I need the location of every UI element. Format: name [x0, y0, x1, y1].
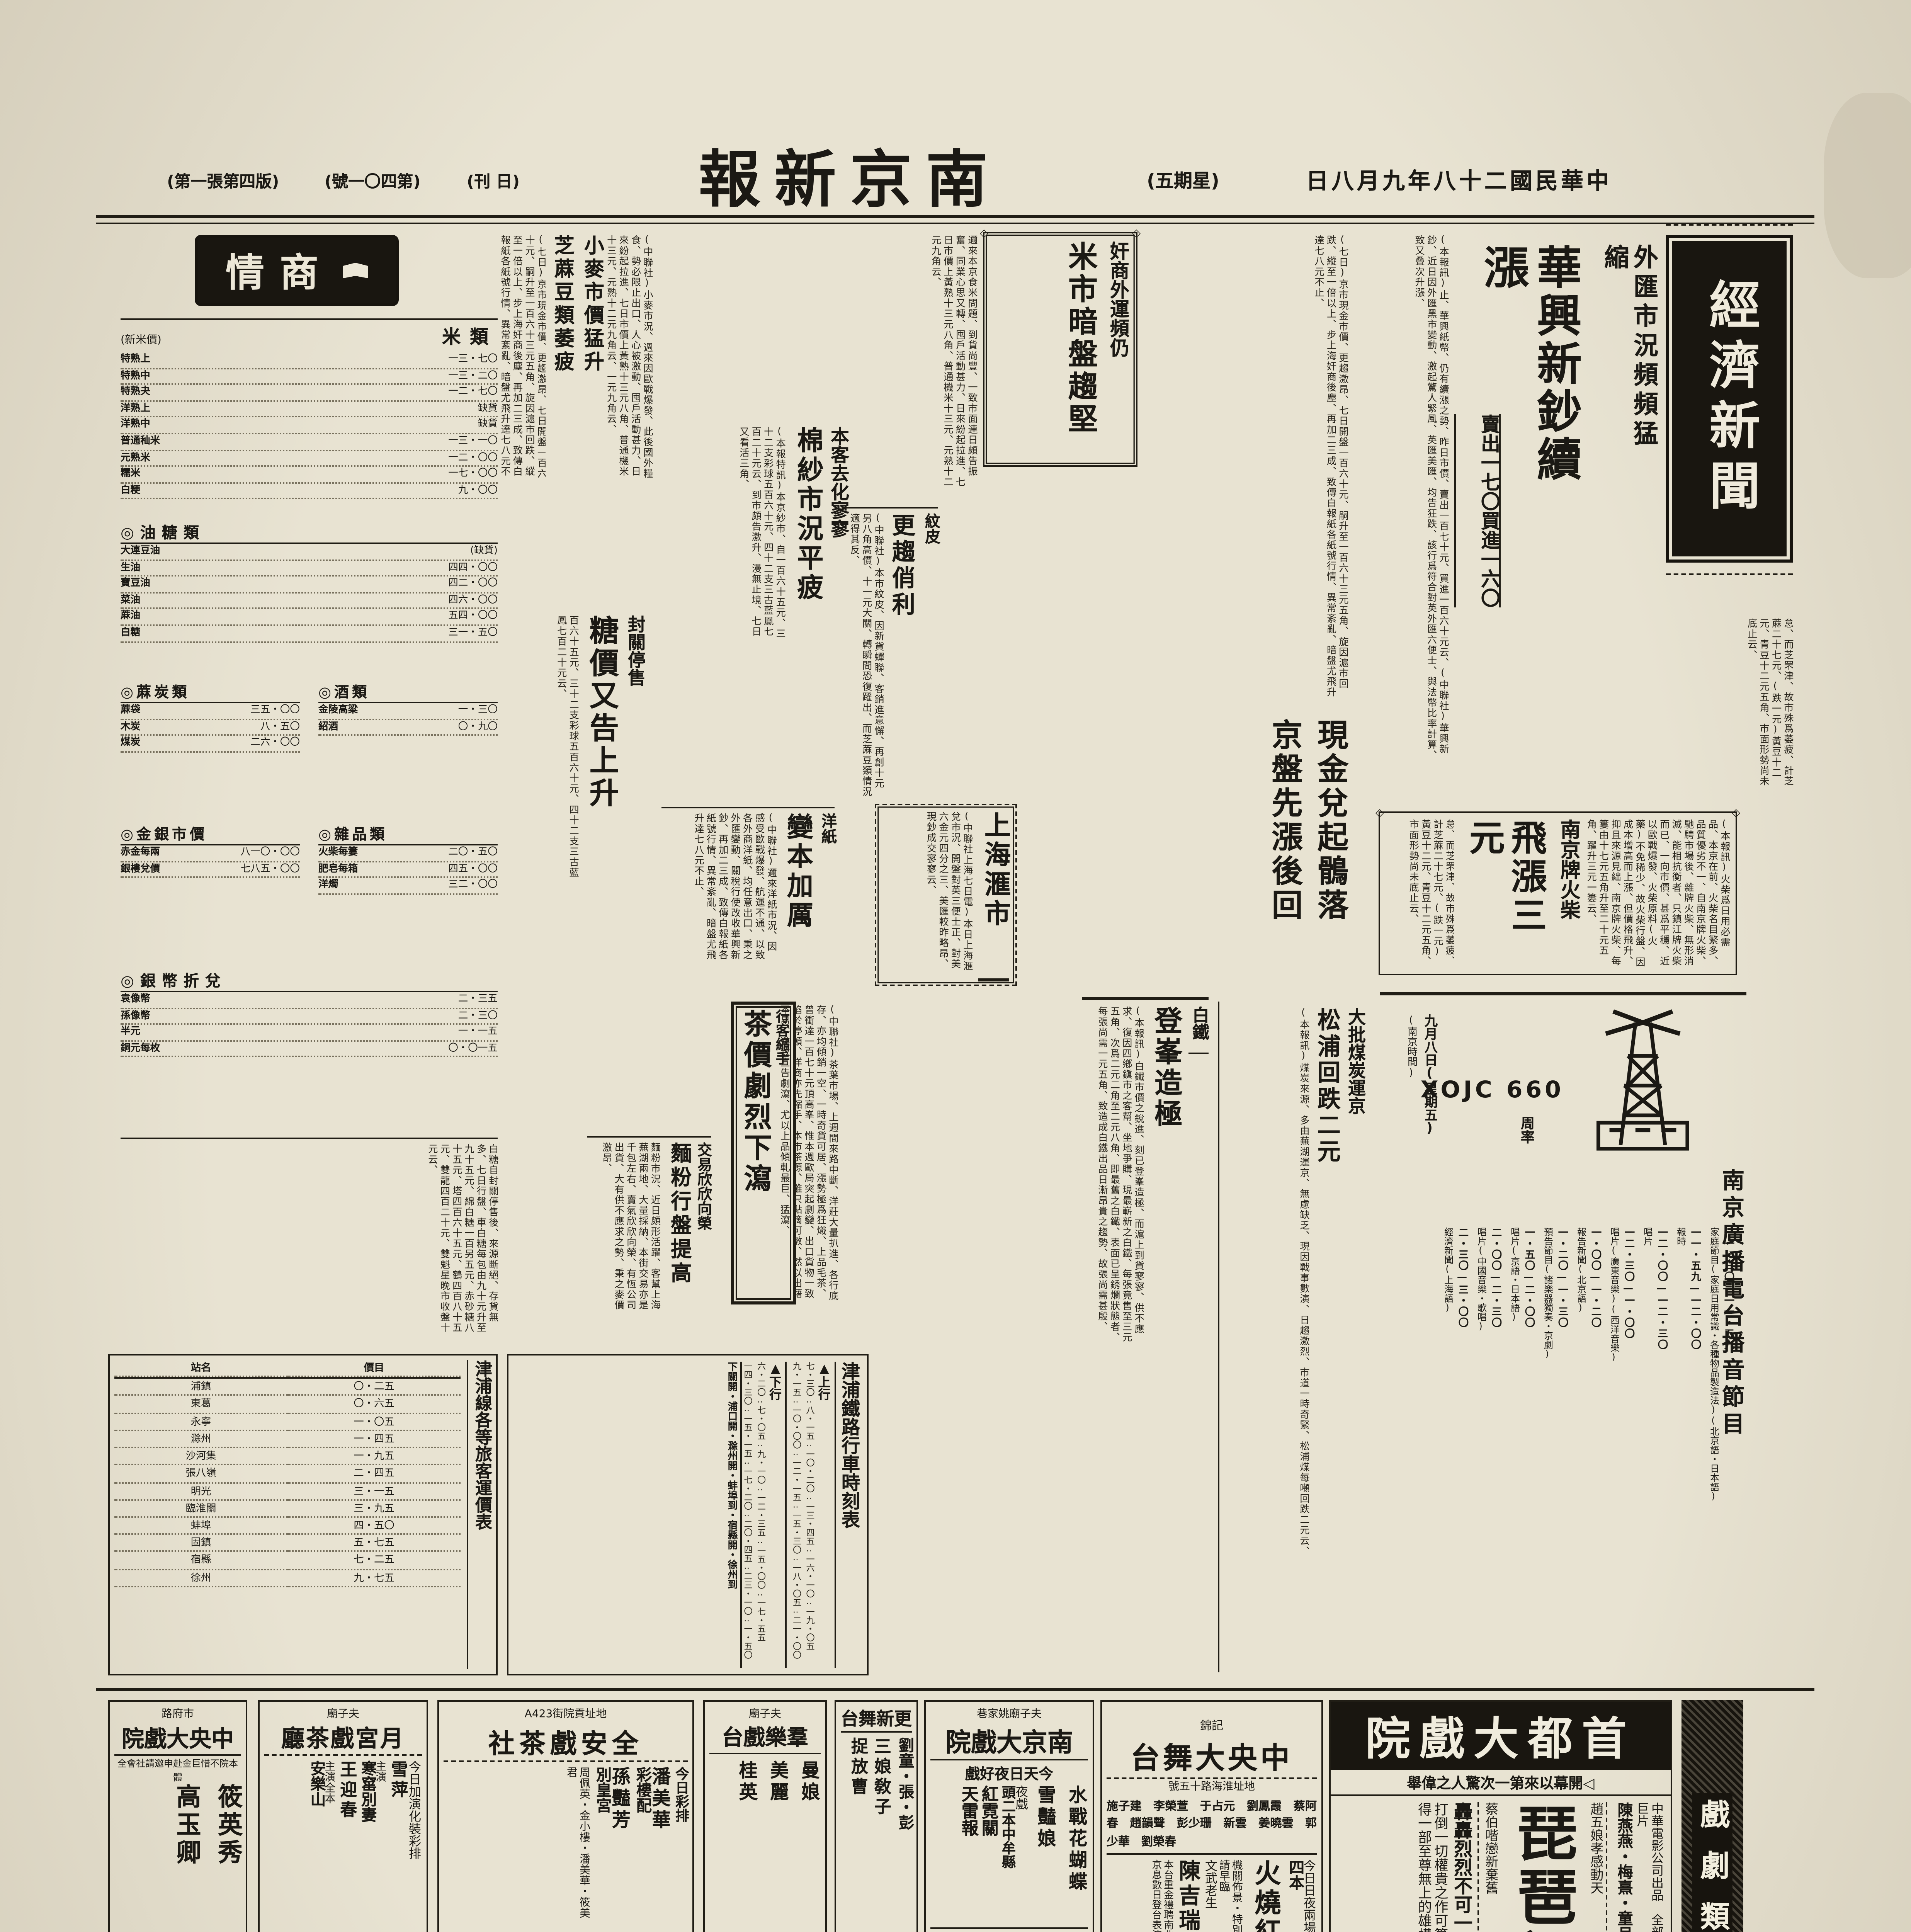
rice-body: 邇來本京食米問題、到貨尚豐、一致市面連日頗告振奮、同業心思又轉、囤戶活動甚力、日… [865, 235, 977, 495]
quanan-address: 地址貢院街324A [444, 1706, 688, 1722]
table-cell: 生油 [121, 560, 140, 575]
table-row: 特熟上一三・七〇 [121, 352, 498, 369]
table-cell: 煤炭 [121, 736, 140, 751]
wheat-headline-1: 小麥市價猛升 [579, 235, 603, 405]
zhongyang-stage-kicker: 錦記 [1200, 1719, 1223, 1733]
table-cell: 〇・六五 [287, 1396, 461, 1414]
table-cell: 一・三〇 [458, 703, 498, 718]
table-row: 宿縣七・二五 [114, 1553, 461, 1570]
table-row: 一・五〇—二・〇〇唱片(京語・日本語) [1507, 1227, 1536, 1669]
sugar-body-continued: 白糖自封關停售後、來源斷絕、存貨無多、七日行盤、車白糖每包由九十元升至九十五元、… [121, 1138, 498, 1342]
railway-timetable: 津浦鐵路行車時刻表 ▲上行 七・三〇‥八・一五‥一〇・二〇‥一三・四五‥一六・一… [507, 1354, 869, 1675]
table-cell: 元熟米 [121, 451, 150, 466]
table-cell: 滁州 [114, 1431, 287, 1449]
table-row: 蔴油五四・〇〇 [121, 610, 498, 626]
table-cell: 蚌埠 [114, 1518, 287, 1535]
paper-market-kicker: 洋紙 [816, 813, 835, 875]
nanjing-day-play-2: 雪豔娘 [1035, 1785, 1057, 1927]
table-cell: 一二・〇〇—一二・三〇 [1654, 1227, 1669, 1669]
table-cell: 三・九五 [287, 1500, 461, 1518]
qunle-star-3: 桂英 [736, 1760, 758, 1932]
shoudu-banner: 首都大戲院 [1331, 1702, 1671, 1770]
table-cell: 火柴每簍 [318, 845, 358, 860]
table-cell: 宿縣 [114, 1553, 287, 1570]
shoudu-studio-lines: 中華電影公司出品 全部有聲對白歌唱 古裝名劇巨片 [1636, 1802, 1665, 1932]
nanjing-night-play-3: 天雷報 [958, 1785, 978, 1927]
table-cell: 二・四五 [287, 1466, 461, 1483]
zhongyang-stage-ad: 錦記 中央大舞台 地址淮海路十五號 施子建 李榮萱 于占元 劉鳳霞 蔡阿春 趙韻… [1100, 1700, 1323, 1932]
sugar-kicker: 封關停售 [625, 615, 646, 739]
table-cell: 二・三〇—三・〇〇 [1454, 1227, 1470, 1669]
quanan-teahouse-ad: 地址貢院街324A 全安戲茶社 今日彩排 潘美華 彩樓配 孫豔芳 別皇宮 周佩英… [437, 1700, 694, 1932]
table-cell: 九・七五 [287, 1570, 461, 1587]
table-cell: 唱片 [1640, 1227, 1654, 1669]
table-cell: 三五・〇〇 [250, 703, 300, 718]
table-cell: 七・二五 [287, 1553, 461, 1570]
zhongyang-theater-star2: 高玉卿 [170, 1784, 200, 1932]
weekday-label: (星期五) [1147, 167, 1219, 193]
edition-label: (第一張第四版) [167, 170, 279, 193]
timetable-up-train-2: 九・一五‥一〇・〇〇‥一二・一五‥一五・三〇‥一八・〇五‥二一・〇〇 [790, 1362, 800, 1668]
market-section-oil-rows: 大連豆油(缺貨)生油四四・〇〇寶豆油四二・〇〇菜油四六・〇〇蔴油五四・〇〇白糖三… [121, 544, 498, 643]
table-row: 滁州一・四五 [114, 1431, 461, 1449]
shoudu-tag-left: 蔡伯喈戀新棄舊 [1478, 1802, 1498, 1932]
flour-body: 麵粉市況、近日頗形活躍、客幫上海蕪湖兩地、大量採納、本街交易亦是千包左右、賣氣欣… [607, 1142, 660, 1314]
table-row: 二・〇〇—二・三〇唱片(中國音樂・歌唱) [1474, 1227, 1503, 1669]
lead-body-2: 怠、而芝罘津、故市殊爲萎疲、計芝蔴二十七元、(跌一元)黃豆十二元、青豆十二元五角… [1507, 618, 1793, 791]
market-section-hemp-title: ◎蔴炭類 [121, 680, 300, 703]
quanan-today: 今日彩排 [672, 1767, 688, 1859]
table-row: 臨淮關三・九五 [114, 1500, 461, 1518]
market-section-coins: ◎銀幣折兌 袁像幣二・三五孫像幣二・三〇半元一・一五銅元每枚〇・〇一五 [121, 968, 498, 1125]
paper-stain-4 [1824, 93, 1911, 278]
table-cell: 金陵高粱 [318, 703, 358, 718]
table-row: 火柴每簍二〇・五〇 [318, 845, 498, 862]
table-cell: 特熟中 [121, 369, 150, 383]
date-line: 中華民國二十八年九月八日 [1306, 164, 1612, 196]
table-row: 赤金每兩八一〇・〇〇 [121, 845, 300, 862]
table-cell: 銅元每枚 [121, 1041, 160, 1056]
shoudu-praise-1: 轟轟烈烈不可一世 [1452, 1802, 1474, 1932]
market-section-hemp: ◎蔴炭類 蔴袋三五・〇〇木炭八・五〇煤炭二六・〇〇 [121, 680, 300, 816]
logo-ornament-bottom [1666, 572, 1793, 575]
table-cell: 一・五〇—二・〇〇 [1521, 1227, 1536, 1669]
radio-freq-label: 周率 [1517, 1116, 1533, 1162]
paper-market-article: 洋紙 變本加厲 (中聯社)邇來洋紙市況、因感受歐戰爆發、航運不通、以致各外商洋紙… [661, 807, 835, 961]
nanjing-theater-today: 今天日夜好戲 [930, 1760, 1088, 1785]
shangqing-logo-text: 商情 [226, 243, 334, 298]
table-cell: 一三・二〇 [448, 369, 498, 383]
nanjing-theater-ad: 夫子廟姚家巷 南京大戲院 今天日夜好戲 水戰花蝴蝶 雪豔娘 夜戲 頭二本中牟縣 … [924, 1700, 1094, 1932]
table-row: 銀樓兌價七八五・〇〇 [121, 862, 300, 878]
yuegong-today: 今日加演化裝彩排 [407, 1760, 422, 1932]
table-cell: 洋燭 [318, 878, 338, 893]
gengxin-play-1: 三娘敎子 [870, 1737, 891, 1932]
shoudu-slogan: ◁開幕以來第一次驚人之偉舉 [1331, 1770, 1671, 1796]
market-section-oil-title: ◎油糖類 [121, 519, 498, 544]
table-cell: 浦鎮 [114, 1379, 287, 1396]
qunle-name: 羣樂戲台 [709, 1722, 821, 1754]
table-row: 白粳九・〇〇 [121, 484, 498, 500]
table-row: 紹酒〇・九〇 [318, 719, 498, 736]
table-cell: 紹酒 [318, 719, 338, 734]
matches-body-right: (本報訊)火柴爲日用必需品、本京在前、火柴名目繁多、品質優劣不一、自南京牌火柴、… [1584, 819, 1729, 968]
coal-headline: 松浦回跌二元 [1313, 1008, 1341, 1666]
table-row: 張八嶺二・四五 [114, 1466, 461, 1483]
table-row: 白糖三一・五〇 [121, 626, 498, 642]
table-cell: 孫像幣 [121, 1009, 150, 1023]
table-cell: 一三・一〇 [448, 434, 498, 449]
table-cell: 〇・二五 [287, 1379, 461, 1396]
masthead-rule-top [96, 215, 1814, 219]
wheat-body-left: (七日)京市現金市價、更趨激昂、七日開盤一百六十元、嗣升至一百六十三元五角、旋因… [500, 235, 546, 482]
table-cell: 一二・三〇—一・〇〇 [1620, 1227, 1636, 1669]
table-cell: 二六・〇〇 [250, 736, 300, 751]
market-section-gold: ◎金銀市價 赤金每兩八一〇・〇〇銀樓兌價七八五・〇〇 [121, 822, 300, 958]
table-cell: 蔴油 [121, 610, 140, 624]
shoudu-praise-3: 得一部至尊無上的雄構 [1414, 1802, 1430, 1932]
table-cell: 家庭節目(家庭日用常識・各種物品製造法)(北京語・日本語) [1706, 1227, 1720, 1669]
weave-kicker: 紋皮 [920, 513, 938, 606]
radio-date: 九月八日(星期五) [1422, 1014, 1437, 1215]
matches-headline: 飛漲三元 [1460, 819, 1544, 968]
table-cell: 木炭 [121, 719, 140, 734]
cash-headline-2: 京盤先漲後回 [1265, 719, 1302, 985]
theater-category-label: 戲劇類 [1681, 1700, 1743, 1932]
table-cell: 沙河集 [114, 1448, 287, 1466]
table-cell: 白粳 [121, 484, 140, 498]
table-cell: 一・〇〇—一・二〇 [1587, 1227, 1603, 1669]
table-cell: 一・四五 [287, 1431, 461, 1449]
fare-table-rows: 浦鎮〇・二五東葛〇・六五永寧一・〇五滁州一・四五沙河集一・九五張八嶺二・四五明光… [114, 1379, 461, 1587]
table-cell: 大連豆油 [121, 544, 160, 559]
table-cell: 銀樓兌價 [121, 862, 160, 876]
economic-news-logo-text: 經濟新聞 [1699, 278, 1760, 519]
market-section-gold-rows: 赤金每兩八一〇・〇〇銀樓兌價七八五・〇〇 [121, 845, 300, 878]
table-row: 蔴袋三五・〇〇 [121, 703, 300, 719]
fare-table: 津浦線各等旅客運價表 站名 價目 浦鎮〇・二五東葛〇・六五永寧一・〇五滁州一・四… [108, 1354, 498, 1675]
market-section-wine-rows: 金陵高粱一・三〇紹酒〇・九〇 [318, 703, 498, 736]
masthead: (第一張第四版) (第四〇一號) (日 刊) 南京新報 (星期五) 中華民國二十… [108, 142, 1808, 213]
table-cell: 蔴袋 [121, 703, 140, 718]
table-cell: 臨淮關 [114, 1500, 287, 1518]
table-row: 永寧一・〇五 [114, 1414, 461, 1431]
table-cell: 四五・〇〇 [448, 862, 498, 876]
zhongyang-guest-title: 文武老生 [1204, 1859, 1218, 1932]
table-row: 洋燭三二・〇〇 [318, 878, 498, 895]
qunle-location: 夫子廟 [709, 1706, 821, 1722]
zy-note1: 今日日夜兩場開演 [1303, 1859, 1317, 1932]
table-cell: 永寧 [114, 1414, 287, 1431]
lead-body: (本報訊)止、華興紙幣、仍有續漲之勢、昨日市價、賣出一百七十元、買進一百六十元云… [1355, 235, 1448, 768]
quanan-bill2-star: 孫豔芳 [609, 1767, 631, 1927]
table-row: 木炭八・五〇 [121, 719, 300, 736]
shoudu-name: 首都大戲院 [1365, 1703, 1636, 1768]
shoudu-cast-names: 陳燕燕・梅熹・童月娟 [1614, 1802, 1631, 1932]
table-row: 徐州九・七五 [114, 1570, 461, 1587]
table-cell: 三・一五 [287, 1483, 461, 1500]
daily-label: (日 刊) [467, 170, 520, 193]
table-cell: 三一・五〇 [448, 626, 498, 641]
table-cell: 四・五〇 [287, 1518, 461, 1535]
gengxin-name: 更新舞台 [841, 1706, 912, 1733]
yuegong-bill2-note: 主演全本 [323, 1760, 336, 1869]
table-cell: 明光 [114, 1483, 287, 1500]
table-cell: 袁像幣 [121, 992, 150, 1007]
rice-kicker: 奸商外運頻仍 [1105, 241, 1128, 457]
shoudu-studio: 中華電影公司出品 [1651, 1802, 1664, 1901]
yuegong-location: 夫子廟 [264, 1706, 422, 1722]
coal-kicker: 大批煤炭運京 [1345, 1008, 1366, 1666]
table-row: 銅元每枚〇・〇一五 [121, 1041, 498, 1058]
yuegong-bill2-play: 安樂山 [305, 1760, 323, 1932]
quanan-name: 全安戲茶社 [444, 1722, 688, 1762]
table-cell: 缺貨 [478, 418, 498, 433]
table-row: 一一・三〇—一一・五九家庭節目(家庭日用常識・各種物品製造法)(北京語・日本語) [1706, 1227, 1736, 1669]
table-cell: 寶豆油 [121, 577, 150, 592]
table-cell: (缺貨) [470, 544, 498, 559]
timetable-title: 津浦鐵路行車時刻表 [834, 1362, 861, 1668]
table-cell: 洋熟中 [121, 418, 150, 433]
timetable-down-train-1: 六・二〇‥七・〇五‥九・一〇‥一二・三五‥一五・〇〇‥一七・五五 [755, 1362, 765, 1668]
table-row: 東葛〇・六五 [114, 1396, 461, 1414]
table-cell: 特熟夬 [121, 385, 150, 400]
flour-headline: 麵粉行盤提高 [665, 1142, 689, 1314]
tin-body: (本報訊)白鐵市價之銳進、刻已登峯造極、而滬上到貨寥寥、供不應求、復因四鄕鎭市之… [1082, 1006, 1143, 1349]
paper-market-headline: 變本加厲 [781, 813, 812, 961]
fare-col-price: 價目 [287, 1360, 461, 1378]
lead-kicker: 外匯市況頻頻猛縮 [1592, 244, 1657, 453]
table-cell: 洋熟上 [121, 401, 150, 416]
table-row: 一・二〇—一・三〇預告節目(諸樂器獨奏・京劇) [1540, 1227, 1569, 1669]
quanan-bill1-star: 潘美華 [649, 1767, 672, 1927]
table-row: 大連豆油(缺貨) [121, 544, 498, 560]
table-cell: 缺貨 [478, 401, 498, 416]
masthead-rule-bottom [96, 222, 1814, 223]
table-cell: 一・一五 [458, 1025, 498, 1040]
radio-callsign: XOJC 660 [1420, 1076, 1564, 1104]
tea-body: (中聯社)茶葉市場、上週間來路中斷、洋莊大量扒進、各行底存、亦均傾銷一空、一時奇… [804, 1005, 838, 1301]
table-row: 二・三〇—三・〇〇經濟新聞(上海語) [1440, 1227, 1470, 1669]
table-row: 特熟夬一二・七〇 [121, 385, 498, 401]
zhongyang-theater-star1: 筱英秀 [212, 1784, 241, 1932]
tea-headline: 茶價劇烈下瀉 [739, 1009, 772, 1297]
zhongyang-guest-note: 本台重金禮聘南北馳名初次來京 現已到京息數日登台表演擇吉 [1148, 1859, 1172, 1932]
yuegong-teahouse-ad: 夫子廟 月宮戲茶廳 今日加演化裝彩排 雪萍 主演 寒窰別妻 王迎春 主演全本 安… [258, 1700, 428, 1932]
table-cell: 〇・九〇 [458, 719, 498, 734]
zhongyang-stage-note: 今日日夜兩場開演 初次公演 [1302, 1859, 1317, 1932]
yuegong-bill1-note: 主演 [374, 1760, 387, 1822]
cotton-article: 本客去化寥寥 棉紗市況平疲 (本報特訊)本京紗市、自一百六十五元、三十二支彩球五… [661, 427, 850, 646]
table-cell: 一・〇五 [287, 1414, 461, 1431]
zhongyang-guest-name: 陳吉瑞 [1175, 1859, 1200, 1932]
radio-section: 南京廣播電台播音節目 XOJC 660 周率 九月八日(星期五) (南京時間) … [1380, 992, 1746, 1679]
table-cell: 半元 [121, 1025, 140, 1040]
paper-market-body: (中聯社)邇來洋紙市況、因感受歐戰爆發、航運不通、以致各外商洋紙、均任意出口、秉… [680, 813, 776, 961]
table-cell: 八・五〇 [260, 719, 300, 734]
table-cell: 三二・〇〇 [448, 878, 498, 893]
table-cell: 預告節目(諸樂器獨奏・京劇) [1540, 1227, 1554, 1669]
logo-ornament-top [1666, 223, 1793, 226]
paper-title: 南京新報 [699, 130, 1001, 219]
rice-price-rows: 特熟上一三・七〇特熟中一三・二〇特熟夬一二・七〇洋熟上缺貨洋熟中缺貨普通秈米一三… [121, 352, 498, 500]
table-row: 普通秈米一三・一〇 [121, 434, 498, 451]
nanjing-night-label: 夜戲 [1014, 1785, 1029, 1832]
yuegong-name: 月宮戲茶廳 [264, 1722, 422, 1756]
table-cell: 固鎮 [114, 1535, 287, 1553]
matches-body-left: 怠、而芝罘津、故市殊爲萎疲、計芝蔴二十七元、(跌一元)黃豆十二元、青豆十二元五角… [1386, 819, 1454, 968]
table-cell: 經濟新聞(上海語) [1440, 1227, 1454, 1669]
rice-article-box: 奸商外運頻仍 米市暗盤趨堅 [983, 232, 1137, 467]
table-row: 特熟中一三・二〇 [121, 369, 498, 385]
sugar-article: 封關停售 糖價又告上升 百六十五元、三十二支彩球五百六十元、四十二支三古藍鳳七百… [538, 615, 646, 881]
flour-kicker: 交易欣欣向榮 [694, 1142, 711, 1250]
theater-category-text: 戲劇類 [1692, 1792, 1733, 1932]
table-cell: 五・七五 [287, 1535, 461, 1553]
tin-headline: 登峯造極 [1149, 1006, 1182, 1349]
table-cell: 二・三〇 [458, 1009, 498, 1023]
table-row: 糯米一七・〇〇 [121, 467, 498, 483]
newspaper-page: (第一張第四版) (第四〇一號) (日 刊) 南京新報 (星期五) 中華民國二十… [0, 0, 1911, 1932]
table-row: 袁像幣二・三五 [121, 992, 498, 1009]
shoudu-play-title: 琵琶記 [1507, 1802, 1578, 1932]
nanjing-theater-name: 南京大戲院 [930, 1722, 1088, 1760]
nanjing-night-play-1: 頭二本中牟縣 [998, 1785, 1014, 1927]
table-cell: 四四・〇〇 [448, 560, 498, 575]
zhongyang-stage-address: 地址淮海路十五號 [1107, 1779, 1317, 1794]
shanghai-market-box: 上海滙市 (中聯社上海七日電)本日上海滙兌市況、開盤對英三便士正、對美六金元四分… [875, 804, 1017, 986]
zhongyang-stage-name: 中央大舞台 [1107, 1736, 1317, 1779]
table-cell: 七八五・〇〇 [241, 862, 300, 876]
radio-tower-icon [1583, 1008, 1703, 1156]
market-section-misc-title: ◎雜品類 [318, 822, 498, 845]
zhongyang-theater-intro: 本院不惜巨金赴申邀請社會全體 [114, 1756, 241, 1784]
table-row: 生油四四・〇〇 [121, 560, 498, 577]
weave-headline: 更趨俏利 [888, 513, 915, 798]
shoudu-praise-2: 打倒一切權貴之作可算 [1430, 1802, 1447, 1932]
zhongyang-theater-location: 市府路 [114, 1706, 241, 1722]
timetable-up-label: ▲上行 [817, 1362, 831, 1668]
table-cell: 八一〇・〇〇 [241, 845, 300, 860]
table-row: 寶豆油四二・〇〇 [121, 577, 498, 593]
table-cell: 白糖 [121, 626, 140, 641]
market-section-coins-rows: 袁像幣二・三五孫像幣二・三〇半元一・一五銅元每枚〇・〇一五 [121, 992, 498, 1058]
timetable-up-train-1: 七・三〇‥八・一五‥一〇・二〇‥一三・四五‥一六・一〇‥一九・〇五 [803, 1362, 813, 1668]
coal-article: 大批煤炭運京 松浦回跌二元 (本報訊)煤炭來源、多由蕪湖運京、無慮缺乏、現因戰事… [1218, 1002, 1372, 1672]
table-cell: 四二・〇〇 [448, 577, 498, 592]
gengxin-cast: 劉童・張・彭 [894, 1737, 912, 1932]
table-cell: 二・三五 [458, 992, 498, 1007]
table-cell: 唱片(中國音樂・歌唱) [1474, 1227, 1488, 1669]
sugar-headline: 糖價又告上升 [584, 615, 619, 881]
rice-price-note: (新米價) [121, 332, 162, 348]
table-cell: 一・九五 [287, 1448, 461, 1466]
tin-article: 白鐵 登峯造極 (本報訊)白鐵市價之銳進、刻已登峯造極、而滬上到貨寥寥、供不應求… [1082, 997, 1209, 1349]
table-row: 肥皂每箱四五・〇〇 [318, 862, 498, 878]
quanan-bill1-play: 彩樓配 [631, 1767, 649, 1927]
table-cell: 二〇・五〇 [448, 845, 498, 860]
shoudu-cast: 陳燕燕・梅熹・童月娟 主演 [1612, 1802, 1630, 1932]
table-cell: 四六・〇〇 [448, 593, 498, 608]
table-row: 一一・五九—一二・〇〇報時 [1673, 1227, 1702, 1669]
shoudu-tag-right: 趙五娘孝感動天 [1588, 1802, 1608, 1932]
shoudu-line1: 全部有聲對白歌唱 [1651, 1913, 1664, 1932]
book-icon [343, 263, 368, 278]
tin-kicker: 白鐵 [1188, 1006, 1209, 1054]
lead-subhead: 賣出一七〇買進一六〇 [1454, 414, 1501, 607]
quanan-support: 周佩英・金小樓・潘美華・筱美君 [566, 1767, 591, 1927]
table-cell: 一三・七〇 [448, 352, 498, 367]
radio-frequency: 660 [1506, 1076, 1564, 1104]
nanjing-theater-location: 夫子廟姚家巷 [930, 1706, 1088, 1722]
yuegong-bill1-play: 寒窰別妻 [356, 1760, 374, 1932]
market-section-wine-title: ◎酒類 [318, 680, 498, 703]
table-cell: 〇・〇一五 [448, 1041, 498, 1056]
timetable-down-label: ▲下行 [768, 1362, 787, 1668]
sugar-body: 百六十五元、三十二支彩球五百六十元、四十二支三古藍鳳七百二十元云、 [553, 615, 578, 881]
table-row: 菜油四六・〇〇 [121, 593, 498, 609]
weave-article: 紋皮 更趨俏利 (中聯社)本市紋皮、因新貨蟬聯、客銷進意懈、再創十元另八角高價、… [842, 507, 938, 798]
zy-guest-note1: 本台重金禮聘南北馳名初次來京 [1161, 1859, 1173, 1932]
table-cell: 張八嶺 [114, 1466, 287, 1483]
table-cell: 特熟上 [121, 352, 150, 367]
nanjing-day-play-1: 水戰花蝴蝶 [1066, 1785, 1088, 1927]
table-row: 一・〇〇—一・二〇報告新聞(北京語) [1573, 1227, 1603, 1669]
shanghai-market-body: (中聯社上海七日電)本日上海滙兌市況、開盤對英三便士正、對美六金元四分之三、美匯… [892, 811, 972, 978]
yuegong-bill2-star: 王迎春 [336, 1760, 356, 1932]
table-cell: 報告新聞(北京語) [1573, 1227, 1587, 1669]
quanan-bill2-play: 別皇宮 [591, 1767, 609, 1927]
market-section-oil: ◎油糖類 大連豆油(缺貨)生油四四・〇〇寶豆油四二・〇〇菜油四六・〇〇蔴油五四・… [121, 519, 498, 671]
coal-body: (本報訊)煤炭來源、多由蕪湖運京、無慮缺乏、現因戰事數演、日趨激烈、市道一時奇緊… [1238, 1008, 1309, 1666]
table-row: 一二・〇〇—一二・三〇唱片 [1640, 1227, 1669, 1669]
market-section-wine: ◎酒類 金陵高粱一・三〇紹酒〇・九〇 [318, 680, 498, 816]
table-cell: 一二・〇〇 [448, 451, 498, 466]
qunle-stage-ad: 夫子廟 羣樂戲台 曼娘 美麗 桂英 [703, 1700, 827, 1932]
market-section-coins-title: ◎銀幣折兌 [121, 968, 498, 992]
table-row: 孫像幣二・三〇 [121, 1009, 498, 1025]
table-row: 沙河集一・九五 [114, 1448, 461, 1466]
issue-number: (第四〇一號) [325, 170, 420, 193]
table-row: 金陵高粱一・三〇 [318, 703, 498, 719]
zhongyang-stage-play-pre: 四本 [1284, 1859, 1302, 1932]
market-section-misc: ◎雜品類 火柴每簍二〇・五〇肥皂每箱四五・〇〇洋燭三二・〇〇 [318, 822, 498, 958]
timetable-down-train-2: 一四・三〇‥一五・一五‥一七・二〇‥二〇・四五‥二三・一〇‥一・五〇 [741, 1362, 751, 1668]
table-cell: 徐州 [114, 1570, 287, 1587]
rice-price-title: 米類 [442, 323, 498, 349]
timetable-station-column: 下關開・浦口開・滁州開・蚌埠到・宿縣開・徐州到 [725, 1362, 741, 1668]
table-row: 明光三・一五 [114, 1483, 461, 1500]
table-cell: 普通秈米 [121, 434, 160, 449]
table-cell: 報時 [1673, 1227, 1687, 1669]
table-cell: 一一・五九—一二・〇〇 [1687, 1227, 1702, 1669]
shangqing-logo: 商情 [195, 235, 399, 306]
cotton-body: (本報特訊)本京紗市、自一百六十五元、三十二支彩球五百六十元、四十二支三古藍鳳七… [704, 427, 785, 646]
cash-body: (七日)京市現金市價、更趨激昂、七日開盤一百六十元、嗣升至一百六十三元五角、旋因… [1215, 235, 1348, 706]
qunle-star-1: 曼娘 [799, 1760, 821, 1932]
table-row: 浦鎮〇・二五 [114, 1379, 461, 1396]
rice-price-section: (新米價) 米類 特熟上一三・七〇特熟中一三・二〇特熟夬一二・七〇洋熟上缺貨洋熟… [121, 318, 498, 510]
zhongyang-theater-name: 中央大戲院 [114, 1722, 241, 1756]
table-row: 洋熟上缺貨 [121, 401, 498, 418]
fare-table-header: 站名 價目 [114, 1360, 461, 1379]
market-section-gold-title: ◎金銀市價 [121, 822, 300, 845]
matches-article: (本報訊)火柴爲日用必需品、本京在前、火柴名目繁多、品質優劣不一、自南京牌火柴、… [1379, 811, 1737, 975]
flour-article: 交易欣欣向榮 麵粉行盤提高 麵粉市況、近日頗形活躍、客幫上海蕪湖兩地、大量採納、… [587, 1136, 711, 1314]
table-cell: 赤金每兩 [121, 845, 160, 860]
cotton-headline: 棉紗市況平疲 [791, 427, 822, 646]
radio-timezone: (南京時間) [1404, 1014, 1416, 1153]
